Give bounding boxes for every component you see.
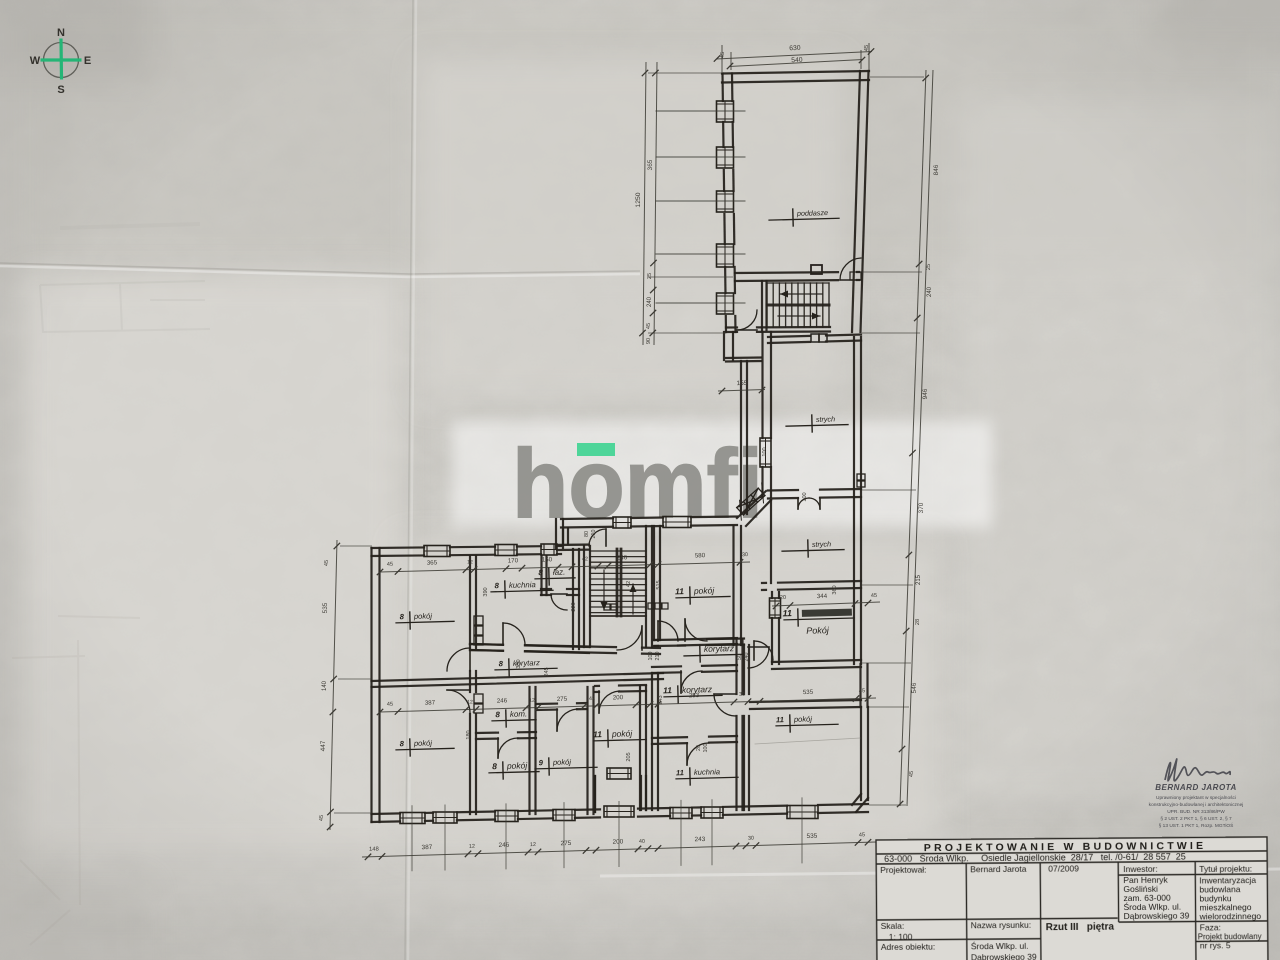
svg-text:387: 387: [425, 699, 436, 706]
svg-text:Skala:: Skala:: [881, 921, 905, 931]
svg-text:275: 275: [557, 696, 568, 703]
svg-text:12: 12: [530, 842, 536, 848]
svg-text:390: 390: [483, 587, 489, 596]
svg-text:pokój: pokój: [413, 738, 433, 748]
svg-text:strych: strych: [816, 414, 835, 423]
svg-text:370: 370: [918, 502, 925, 513]
svg-text:80: 80: [584, 531, 590, 537]
svg-text:546: 546: [911, 682, 918, 693]
svg-text:100: 100: [802, 492, 808, 501]
svg-text:215: 215: [916, 574, 922, 585]
svg-text:wielorodzinnego: wielorodzinnego: [1199, 911, 1262, 921]
svg-text:poddasze: poddasze: [796, 208, 828, 218]
svg-text:pokój: pokój: [552, 757, 572, 767]
svg-text:330: 330: [516, 659, 522, 668]
svg-text:360: 360: [832, 585, 838, 594]
svg-text:12: 12: [469, 844, 475, 850]
svg-text:Nazwa rysunku:: Nazwa rysunku:: [971, 920, 1032, 930]
svg-text:11: 11: [663, 685, 672, 695]
svg-text:275: 275: [560, 840, 571, 847]
svg-text:90: 90: [646, 338, 652, 344]
svg-text:11: 11: [676, 768, 684, 777]
svg-text:Środa Wlkp. ul.: Środa Wlkp. ul.: [971, 940, 1029, 951]
svg-text:45: 45: [859, 688, 865, 694]
svg-text:Faza:: Faza:: [1200, 922, 1221, 932]
svg-text:243: 243: [658, 695, 664, 704]
svg-text:11: 11: [675, 586, 684, 596]
svg-text:Uprawniony projektant w specja: Uprawniony projektant w specjalności: [1156, 795, 1236, 801]
svg-text:45: 45: [324, 560, 330, 566]
svg-text:240: 240: [647, 296, 653, 307]
svg-text:240: 240: [927, 286, 933, 297]
svg-text:200: 200: [613, 694, 624, 701]
svg-text:200: 200: [612, 838, 623, 845]
svg-text:243: 243: [694, 836, 705, 843]
svg-text:BERNARD JAROTA: BERNARD JAROTA: [1155, 783, 1237, 792]
svg-text:łaz.: łaz.: [553, 568, 566, 577]
svg-text:pokój: pokój: [693, 585, 716, 596]
svg-text:365: 365: [427, 559, 438, 566]
svg-text:UPR. BUD. NR 313/86/PW: UPR. BUD. NR 313/86/PW: [1167, 809, 1225, 815]
svg-text:155: 155: [736, 380, 747, 387]
svg-text:100: 100: [648, 652, 654, 661]
svg-text:150: 150: [542, 556, 553, 563]
svg-text:540: 540: [791, 57, 803, 65]
svg-text:pokój: pokój: [506, 760, 529, 771]
svg-text:630: 630: [789, 45, 801, 53]
svg-text:42: 42: [626, 581, 632, 587]
svg-text:100: 100: [703, 744, 709, 753]
svg-text:246: 246: [497, 697, 508, 704]
svg-text:Adres obiektu:: Adres obiektu:: [881, 942, 935, 952]
svg-text:100: 100: [762, 447, 768, 456]
svg-text:E: E: [84, 55, 91, 67]
svg-text:535: 535: [803, 689, 814, 696]
svg-text:45: 45: [387, 702, 393, 708]
svg-text:1: 100: 1: 100: [889, 932, 913, 942]
svg-text:45: 45: [387, 562, 393, 568]
svg-text:45: 45: [319, 815, 325, 821]
svg-text:25: 25: [647, 273, 653, 279]
svg-text:226: 226: [571, 602, 577, 611]
svg-text:210: 210: [591, 530, 597, 539]
svg-text:11: 11: [782, 608, 792, 618]
svg-text:kuchnia: kuchnia: [509, 580, 537, 590]
svg-text:20: 20: [696, 745, 702, 751]
svg-text:148: 148: [369, 846, 379, 852]
svg-text:42: 42: [582, 556, 588, 562]
svg-text:365: 365: [647, 159, 654, 170]
svg-text:20: 20: [780, 595, 786, 601]
svg-text:240: 240: [744, 653, 750, 662]
svg-text:50: 50: [737, 654, 743, 660]
svg-text:210: 210: [655, 652, 661, 661]
svg-text:§ 2 UST. 2 PKT 1, § 6 UST. 2,: § 2 UST. 2 PKT 1, § 6 UST. 2, § 7: [1160, 816, 1232, 822]
svg-text:Pokój: Pokój: [806, 625, 830, 636]
svg-text:846: 846: [933, 164, 940, 175]
svg-text:pokój: pokój: [793, 714, 813, 724]
svg-text:12: 12: [467, 699, 473, 705]
svg-text:strych: strych: [812, 539, 831, 548]
svg-text:42: 42: [589, 696, 595, 702]
svg-text:30: 30: [748, 836, 754, 842]
svg-text:28: 28: [915, 619, 921, 625]
svg-text:Dąbrowskiego 39: Dąbrowskiego 39: [1124, 911, 1190, 922]
svg-text:konstrukcyjno-budowlanej i arc: konstrukcyjno-budowlanej i architektonic…: [1149, 802, 1244, 808]
svg-text:45: 45: [646, 323, 652, 329]
svg-text:8: 8: [492, 761, 497, 771]
svg-text:535: 535: [806, 833, 817, 840]
svg-text:283: 283: [689, 692, 700, 699]
svg-text:25: 25: [926, 264, 932, 270]
svg-text:344: 344: [817, 593, 828, 600]
svg-text:205: 205: [626, 752, 632, 761]
svg-text:8: 8: [495, 710, 500, 719]
svg-text:170: 170: [508, 557, 519, 564]
svg-text:946: 946: [922, 388, 929, 399]
svg-text:Dąbrowskiego 39: Dąbrowskiego 39: [971, 952, 1037, 960]
svg-text:W: W: [30, 55, 41, 67]
svg-text:S: S: [57, 84, 64, 96]
svg-text:30: 30: [742, 552, 748, 558]
svg-text:pokój: pokój: [611, 728, 634, 739]
svg-text:11: 11: [593, 729, 602, 739]
svg-text:N: N: [57, 27, 65, 39]
svg-text:45: 45: [909, 771, 915, 777]
svg-text:580: 580: [695, 552, 706, 559]
svg-text:246: 246: [498, 842, 509, 849]
svg-text:40: 40: [639, 839, 645, 845]
svg-text:515: 515: [656, 580, 662, 589]
svg-text:535: 535: [322, 602, 329, 613]
svg-text:kuchnia: kuchnia: [694, 767, 720, 777]
svg-text:Rzut III piętra: Rzut III piętra: [1046, 922, 1115, 934]
svg-text:07/2009: 07/2009: [1048, 863, 1079, 873]
svg-text:45: 45: [864, 45, 870, 51]
svg-text:447: 447: [320, 740, 327, 751]
svg-text:245: 245: [544, 667, 550, 676]
svg-text:homfi: homfi: [512, 429, 763, 538]
svg-text:1250: 1250: [635, 192, 642, 207]
svg-text:180: 180: [466, 730, 472, 739]
svg-text:pokój: pokój: [413, 611, 433, 621]
svg-text:Bernard Jarota: Bernard Jarota: [970, 864, 1027, 874]
svg-text:45: 45: [720, 52, 726, 58]
svg-text:8: 8: [538, 568, 543, 577]
svg-text:12: 12: [529, 698, 535, 704]
svg-text:nr rys. 5: nr rys. 5: [1200, 940, 1231, 950]
svg-text:246: 246: [617, 554, 628, 561]
svg-text:12: 12: [467, 559, 473, 565]
svg-text:11: 11: [776, 715, 784, 724]
svg-text:140: 140: [322, 680, 328, 691]
svg-text:Inwestor:: Inwestor:: [1123, 864, 1158, 874]
svg-text:45: 45: [859, 832, 865, 838]
svg-text:30: 30: [739, 692, 745, 698]
svg-text:Tytuł projektu:: Tytuł projektu:: [1199, 864, 1252, 874]
svg-text:45: 45: [871, 593, 877, 599]
svg-text:Projektował:: Projektował:: [880, 865, 926, 875]
svg-text:kom.: kom.: [510, 709, 528, 718]
svg-text:387: 387: [421, 844, 432, 851]
